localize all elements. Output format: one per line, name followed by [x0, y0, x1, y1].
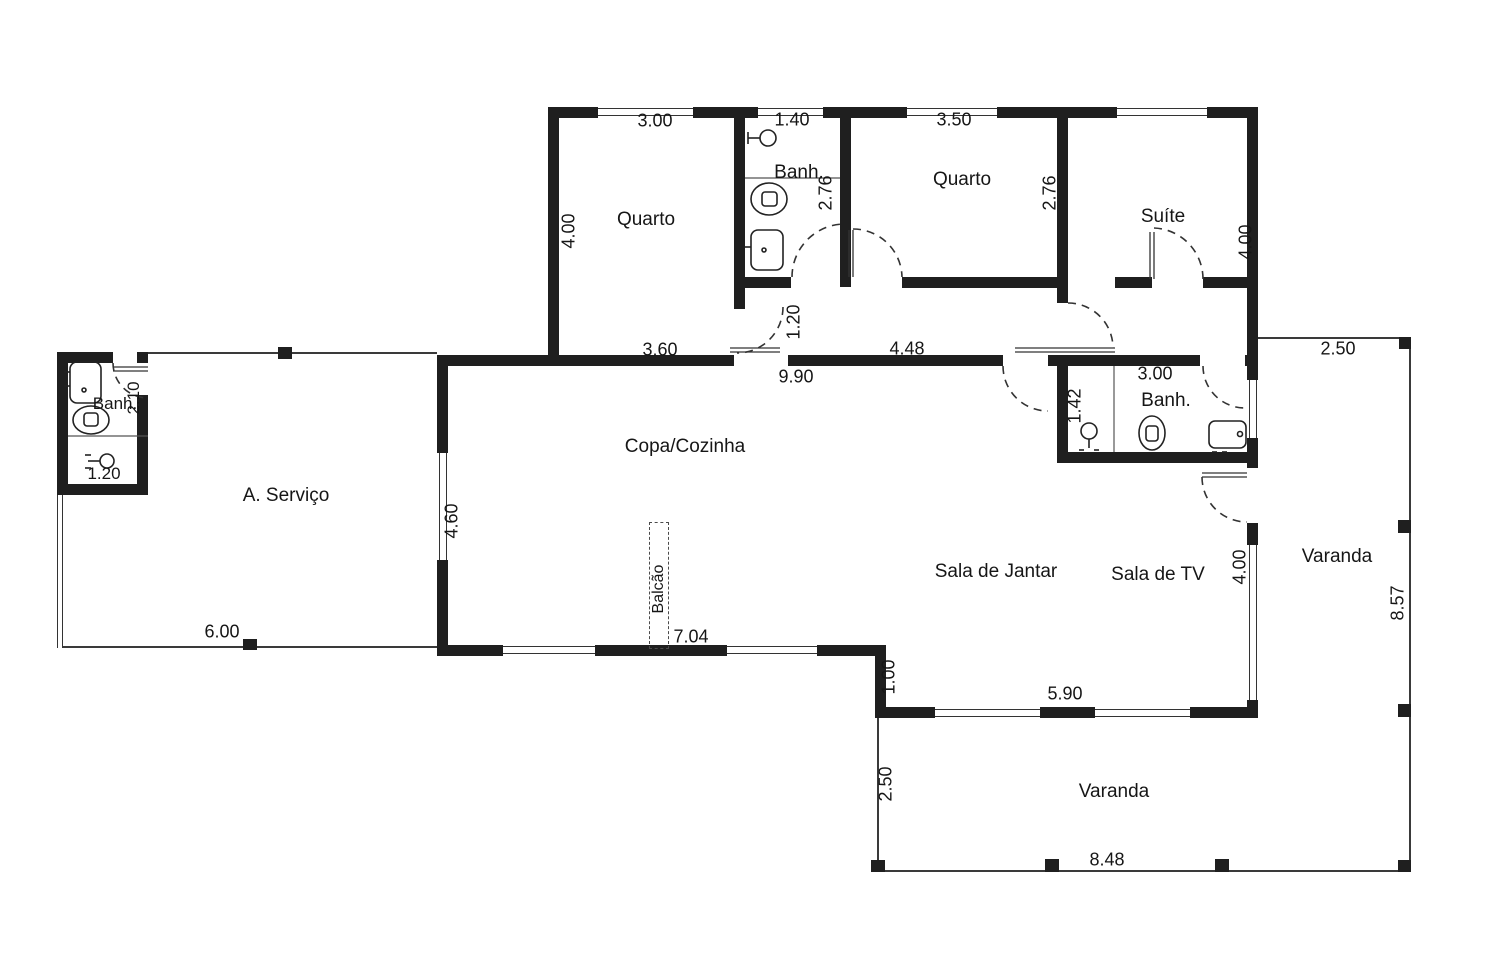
- dim-banh-top-w: 1.40: [774, 110, 809, 131]
- shower-icon: [1079, 423, 1099, 450]
- dim-quarto1-w: 3.00: [637, 111, 672, 132]
- room-label-sala-jantar: Sala de Jantar: [935, 561, 1058, 583]
- room-label-suite: Suíte: [1141, 206, 1185, 228]
- dim-hall-q2-w: 4.48: [889, 339, 924, 360]
- room-label-quarto2: Quarto: [933, 169, 991, 191]
- dim-suite-h: 4.00: [1236, 224, 1257, 259]
- sink-icon: [1209, 421, 1246, 452]
- toilet-icon: [751, 183, 787, 215]
- plan-symbols-layer: [0, 0, 1512, 964]
- dim-varanda-leste-topo: 2.50: [1320, 339, 1355, 360]
- dim-banh-suite-box: 1.42: [1065, 388, 1086, 423]
- sink-icon: [744, 230, 783, 270]
- dim-varanda-sul-w: 8.48: [1089, 850, 1124, 871]
- room-label-servico: A. Serviço: [243, 485, 330, 507]
- dim-quarto2-w: 3.50: [936, 110, 971, 131]
- room-label-varanda-leste: Varanda: [1302, 546, 1372, 568]
- dim-hall-q1-w: 3.60: [642, 340, 677, 361]
- room-label-copa: Copa/Cozinha: [625, 436, 745, 458]
- dim-varanda-sul-h: 2.50: [876, 766, 897, 801]
- counter-label: Balcão: [650, 565, 668, 614]
- door-arc: [113, 224, 1247, 522]
- dim-banh-suite-w: 3.00: [1137, 364, 1172, 385]
- dim-copa-janela-h: 4.60: [442, 503, 463, 538]
- shower-icon: [748, 130, 776, 146]
- dim-degrau-h: 1.00: [879, 659, 900, 694]
- room-label-quarto1: Quarto: [617, 209, 675, 231]
- dim-banh-top-h: 2.76: [816, 175, 837, 210]
- dim-banh-serv-h: 2.10: [124, 381, 144, 414]
- dim-copa-w: 9.90: [778, 367, 813, 388]
- dim-sala-baixo-w: 5.90: [1047, 684, 1082, 705]
- room-label-sala-tv: Sala de TV: [1111, 564, 1205, 586]
- dim-quarto2-h: 2.76: [1040, 175, 1061, 210]
- dim-servico-w: 6.00: [204, 622, 239, 643]
- room-label-banh-suite: Banh.: [1141, 390, 1191, 412]
- dim-sala-tv-h: 4.00: [1230, 549, 1251, 584]
- toilet-icon: [1139, 416, 1165, 450]
- dim-hall-door-w: 1.20: [784, 304, 805, 339]
- dim-banh-serv-box: 1.20: [87, 464, 120, 484]
- floor-plan: Quarto Banh. Quarto Suíte Banh. Banh. A.…: [0, 0, 1512, 964]
- room-label-varanda-sul: Varanda: [1079, 781, 1149, 803]
- dim-quarto1-h: 4.00: [559, 213, 580, 248]
- dim-copa-baixo-w: 7.04: [673, 627, 708, 648]
- dim-varanda-leste-h: 8.57: [1388, 585, 1409, 620]
- partition-line: [68, 178, 1114, 452]
